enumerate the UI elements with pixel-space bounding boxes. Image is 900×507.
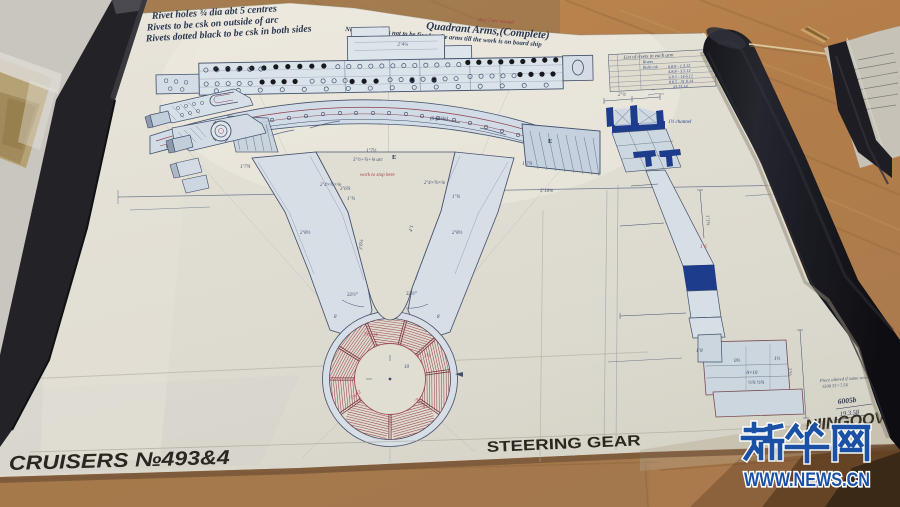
svg-text:E: E <box>548 138 552 145</box>
svg-text:3’6¾: 3’6¾ <box>340 187 351 192</box>
svg-text:1½: 1½ <box>774 357 781 362</box>
svg-text:(5 guide): (5 guide) <box>430 117 449 122</box>
svg-text:A×10: A×10 <box>745 371 758 376</box>
svg-text:2’½: 2’½ <box>618 93 626 98</box>
svg-text:2’8½: 2’8½ <box>452 231 463 236</box>
svg-text:1’7¾: 1’7¾ <box>240 165 251 170</box>
svg-text:43.23.14: 43.23.14 <box>673 84 688 90</box>
svg-text:1’¾: 1’¾ <box>347 197 355 202</box>
svg-text:1’7½: 1’7½ <box>366 149 377 154</box>
svg-text:32½°: 32½° <box>406 292 417 297</box>
svg-text:WWW.NEWS.CN: WWW.NEWS.CN <box>744 469 870 491</box>
svg-text:1’6: 1’6 <box>700 245 707 250</box>
svg-text:2’½: 2’½ <box>786 368 792 377</box>
svg-text:1’7¾: 1’7¾ <box>522 162 533 167</box>
svg-text:1½: 1½ <box>424 354 431 359</box>
svg-text:5’10⅛: 5’10⅛ <box>540 189 553 194</box>
svg-text:0½: 0½ <box>734 359 741 364</box>
svg-text:Bolts csk: Bolts csk <box>643 64 658 70</box>
svg-text:3’6¼: 3’6¼ <box>359 239 365 250</box>
svg-text:32½°: 32½° <box>347 293 358 298</box>
svg-text:2’4¼: 2’4¼ <box>397 43 408 48</box>
svg-text:2’4×¾×⅛: 2’4×¾×⅛ <box>320 183 341 188</box>
svg-text:work to stop here: work to stop here <box>360 173 395 178</box>
svg-text:1’1½: 1’1½ <box>704 215 710 226</box>
svg-text:7¼+⅛: 7¼+⅛ <box>364 333 378 338</box>
svg-text:3’½+¾+⅛ arc: 3’½+¾+⅛ arc <box>353 158 384 163</box>
svg-text:2’8½: 2’8½ <box>300 231 311 236</box>
svg-text:E: E <box>392 154 396 161</box>
svg-text:1’8: 1’8 <box>696 349 703 354</box>
svg-text:2’4×¾×⅛: 2’4×¾×⅛ <box>424 181 445 186</box>
svg-text:10: 10 <box>404 365 410 370</box>
svg-text:1½ channel: 1½ channel <box>668 120 692 125</box>
svg-text:½¾ ½¾: ½¾ ½¾ <box>748 381 765 386</box>
svg-text:1’¾: 1’¾ <box>452 195 460 200</box>
